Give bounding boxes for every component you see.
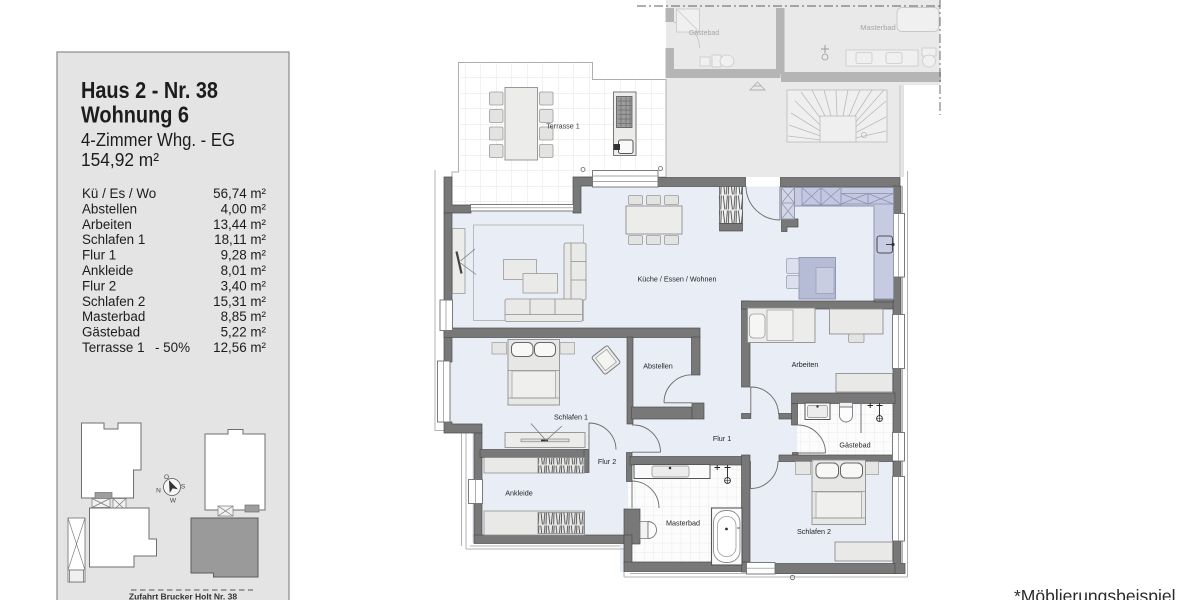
svg-text:Gästebad: Gästebad <box>839 441 870 450</box>
svg-text:Terrasse 1: Terrasse 1 <box>546 122 580 131</box>
svg-text:5,22 m²: 5,22 m² <box>221 325 267 340</box>
svg-text:154,92 m²: 154,92 m² <box>81 149 159 170</box>
svg-text:3,40 m²: 3,40 m² <box>221 278 267 293</box>
svg-text:Zufahrt Brucker Holt Nr. 38: Zufahrt Brucker Holt Nr. 38 <box>129 592 237 600</box>
svg-text:Abstellen: Abstellen <box>643 362 673 371</box>
svg-text:Masterbad: Masterbad <box>860 23 895 32</box>
svg-text:*Möblierungsbeispiel: *Möblierungsbeispiel <box>1014 586 1175 600</box>
svg-text:Terrasse 1: Terrasse 1 <box>82 340 145 355</box>
svg-text:Flur 1: Flur 1 <box>82 248 116 263</box>
svg-text:Masterbad: Masterbad <box>82 309 145 324</box>
svg-text:Wohnung 6: Wohnung 6 <box>81 102 189 128</box>
svg-text:13,44 m²: 13,44 m² <box>213 217 266 232</box>
svg-text:9,28 m²: 9,28 m² <box>221 248 267 263</box>
svg-text:Ankleide: Ankleide <box>82 263 133 278</box>
svg-text:Schlafen 2: Schlafen 2 <box>82 294 145 309</box>
svg-text:Schlafen 2: Schlafen 2 <box>797 527 831 536</box>
svg-text:N: N <box>156 488 161 495</box>
svg-text:18,11 m²: 18,11 m² <box>214 232 266 247</box>
svg-text:Ankleide: Ankleide <box>505 489 533 498</box>
svg-text:Gästebad: Gästebad <box>82 325 140 340</box>
svg-text:Flur 2: Flur 2 <box>598 457 616 466</box>
svg-text:4,00 m²: 4,00 m² <box>221 201 267 216</box>
svg-text:Flur 1: Flur 1 <box>713 434 731 443</box>
svg-text:56,74 m²: 56,74 m² <box>213 186 266 201</box>
svg-text:Küche / Essen / Wohnen: Küche / Essen / Wohnen <box>638 275 717 284</box>
svg-text:Arbeiten: Arbeiten <box>792 360 819 369</box>
svg-text:Arbeiten: Arbeiten <box>82 217 132 232</box>
svg-text:- 50%: - 50% <box>155 340 190 355</box>
svg-text:12,56 m²: 12,56 m² <box>213 340 266 355</box>
svg-text:Schlafen 1: Schlafen 1 <box>554 413 588 422</box>
svg-text:Flur 2: Flur 2 <box>82 278 116 293</box>
svg-text:Kü / Es / Wo: Kü / Es / Wo <box>82 186 156 201</box>
svg-text:Gästebad: Gästebad <box>689 30 719 37</box>
svg-text:15,31 m²: 15,31 m² <box>213 294 266 309</box>
svg-text:8,01 m²: 8,01 m² <box>221 263 267 278</box>
svg-text:W: W <box>170 498 177 505</box>
svg-text:Masterbad: Masterbad <box>666 519 700 528</box>
svg-text:O: O <box>164 474 169 481</box>
svg-text:8,85 m²: 8,85 m² <box>221 309 267 324</box>
svg-text:Haus 2 - Nr. 38: Haus 2 - Nr. 38 <box>81 77 218 103</box>
svg-text:4-Zimmer Whg. - EG: 4-Zimmer Whg. - EG <box>81 129 235 150</box>
svg-text:Abstellen: Abstellen <box>82 201 137 216</box>
svg-text:Schlafen 1: Schlafen 1 <box>82 232 145 247</box>
svg-text:S: S <box>181 484 186 491</box>
